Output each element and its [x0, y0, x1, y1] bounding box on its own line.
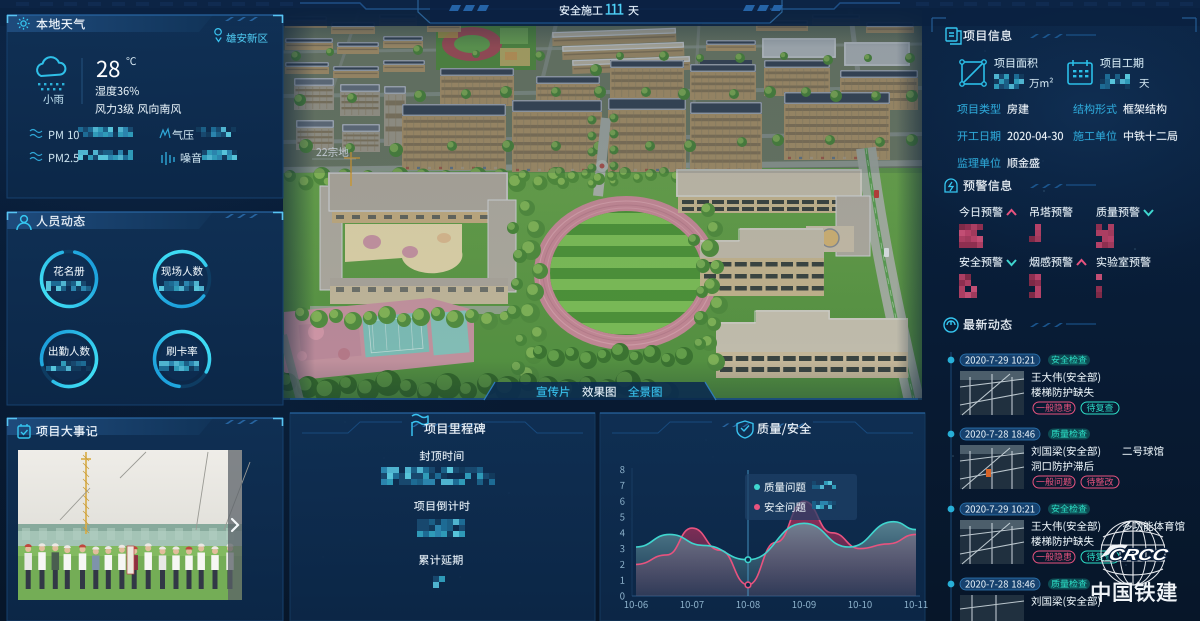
svg-text:CRCC: CRCC [1107, 546, 1170, 564]
